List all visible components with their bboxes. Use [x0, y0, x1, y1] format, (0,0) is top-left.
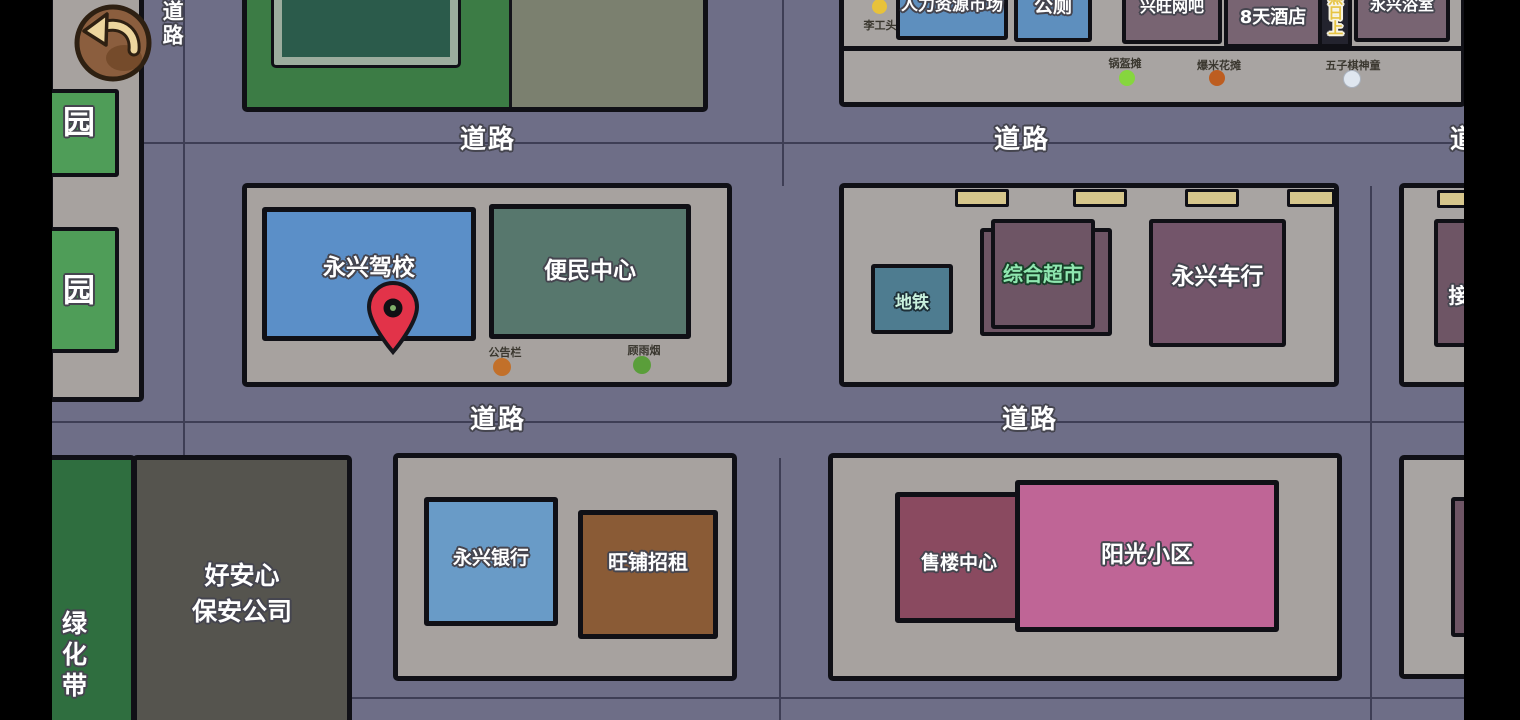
awning-3	[1185, 189, 1239, 207]
building-sales-center-label: 售楼中心	[921, 553, 997, 618]
road-label-row2-right: 道路	[992, 406, 1068, 435]
road-label-row1-right: 道路	[984, 126, 1060, 155]
lane-line-vertical-3	[779, 458, 781, 720]
building-supermarket[interactable]: 综合超市	[991, 219, 1095, 329]
stall-label-guokui: 锅盔摊	[1098, 55, 1152, 71]
top-right-block: 人力资源市场 公厕 兴旺网吧 8天酒店 蒸日上 永兴浴室 李工头 锅盔摊 爆米花…	[839, 0, 1466, 107]
building-shop-for-rent-label: 旺铺招租	[608, 551, 688, 634]
awning-2	[1073, 189, 1127, 207]
building-car-dealer-label: 永兴车行	[1172, 265, 1264, 343]
building-convenience-center-label: 便民中心	[544, 259, 636, 334]
lane-line-horizontal-3	[345, 697, 1466, 699]
green-belt-label: 绿化带	[59, 610, 87, 703]
building-hotel-label: 8天酒店	[1240, 8, 1307, 44]
road-label-top-vertical: 道路	[160, 0, 183, 48]
building-sunshine-community[interactable]: 阳光小区	[1015, 480, 1279, 632]
building-internet-cafe[interactable]: 兴旺网吧	[1122, 0, 1222, 44]
npc-dot-li-foreman[interactable]	[872, 0, 887, 14]
building-supermarket-label: 综合超市	[1003, 263, 1083, 325]
building-hotel[interactable]: 8天酒店	[1224, 0, 1322, 48]
building-bank[interactable]: 永兴银行	[424, 497, 558, 626]
vertical-sign-zhengrishang[interactable]: 蒸日上	[1318, 0, 1352, 48]
bottom-mid-block: 永兴银行 旺铺招租	[393, 453, 737, 681]
top-mid-block	[242, 0, 708, 112]
game-map-screen: 园 园 人力资源市场 公厕 兴旺网吧 8天酒店 蒸日上 永兴浴室	[0, 0, 1520, 720]
lane-line-vertical-4	[1370, 186, 1372, 720]
left-green-building-1-label: 园	[63, 105, 95, 173]
vertical-sign-label: 蒸日上	[1327, 0, 1344, 44]
road-label-row2-left: 道路	[460, 406, 536, 435]
back-button[interactable]	[72, 2, 154, 84]
building-subway[interactable]: 地铁	[871, 264, 953, 334]
building-convenience-center[interactable]: 便民中心	[489, 204, 691, 339]
green-belt-strip: 绿化带	[46, 455, 136, 720]
building-subway-label: 地铁	[895, 294, 929, 330]
building-bathhouse-label: 永兴浴室	[1370, 0, 1434, 38]
awning-4	[1287, 189, 1335, 207]
building-security-company[interactable]: 好安心 保安公司	[132, 455, 352, 720]
lane-line-vertical-1	[183, 0, 185, 458]
road-label-row1-left: 道路	[450, 126, 526, 155]
building-sales-center[interactable]: 售楼中心	[895, 492, 1023, 623]
building-hr-market[interactable]: 人力资源市场	[896, 0, 1008, 40]
building-public-toilet[interactable]: 公厕	[1014, 0, 1092, 42]
olive-yard	[509, 0, 703, 107]
building-internet-cafe-label: 兴旺网吧	[1140, 0, 1204, 40]
lane-line-horizontal-1	[130, 142, 1466, 144]
building-public-toilet-label: 公厕	[1034, 0, 1072, 38]
building-shop-for-rent[interactable]: 旺铺招租	[578, 510, 718, 639]
top-right-divider	[844, 46, 1461, 51]
building-hr-market-label: 人力资源市场	[901, 0, 1003, 36]
framed-green-building[interactable]	[274, 0, 458, 65]
left-green-building-2-label: 园	[63, 273, 95, 349]
building-car-dealer[interactable]: 永兴车行	[1149, 219, 1286, 347]
location-pin[interactable]	[362, 278, 424, 356]
marker-dot-bulletin-board[interactable]	[493, 358, 511, 376]
security-company-label-line2: 保安公司	[192, 598, 292, 626]
stall-dot-gomoku-prodigy[interactable]	[1343, 70, 1361, 88]
lane-line-vertical-2	[782, 0, 784, 186]
awning-1	[955, 189, 1009, 207]
building-bank-label: 永兴银行	[453, 548, 529, 621]
bottom-right-block: 售楼中心 阳光小区	[828, 453, 1342, 681]
left-black-bar	[0, 0, 52, 720]
security-company-label-line1: 好安心	[204, 562, 279, 590]
stall-dot-guokui[interactable]	[1119, 70, 1135, 86]
lane-line-horizontal-2	[52, 421, 1466, 423]
marker-dot-gu-yuyan[interactable]	[633, 356, 651, 374]
stall-dot-popcorn[interactable]	[1209, 70, 1225, 86]
mid-left-block: 永兴驾校 便民中心 公告栏 顾雨烟	[242, 183, 732, 387]
right-black-bar	[1464, 0, 1520, 720]
building-sunshine-community-label: 阳光小区	[1101, 543, 1193, 627]
mid-right-block: 地铁 综合超市 永兴车行	[839, 183, 1339, 387]
building-bathhouse[interactable]: 永兴浴室	[1354, 0, 1450, 42]
